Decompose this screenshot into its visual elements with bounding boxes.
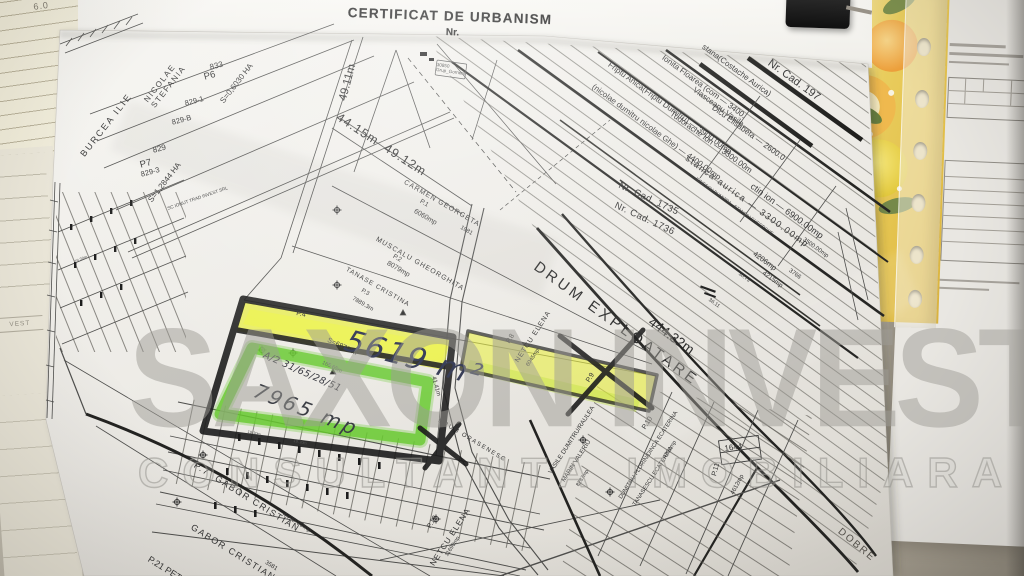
photo-of-cadastral-plan: 10. - 2016 6.0 VEST: [0, 0, 1024, 576]
binder-clip-object: [785, 0, 850, 29]
cadastral-plan-sheet: [0, 0, 1024, 576]
